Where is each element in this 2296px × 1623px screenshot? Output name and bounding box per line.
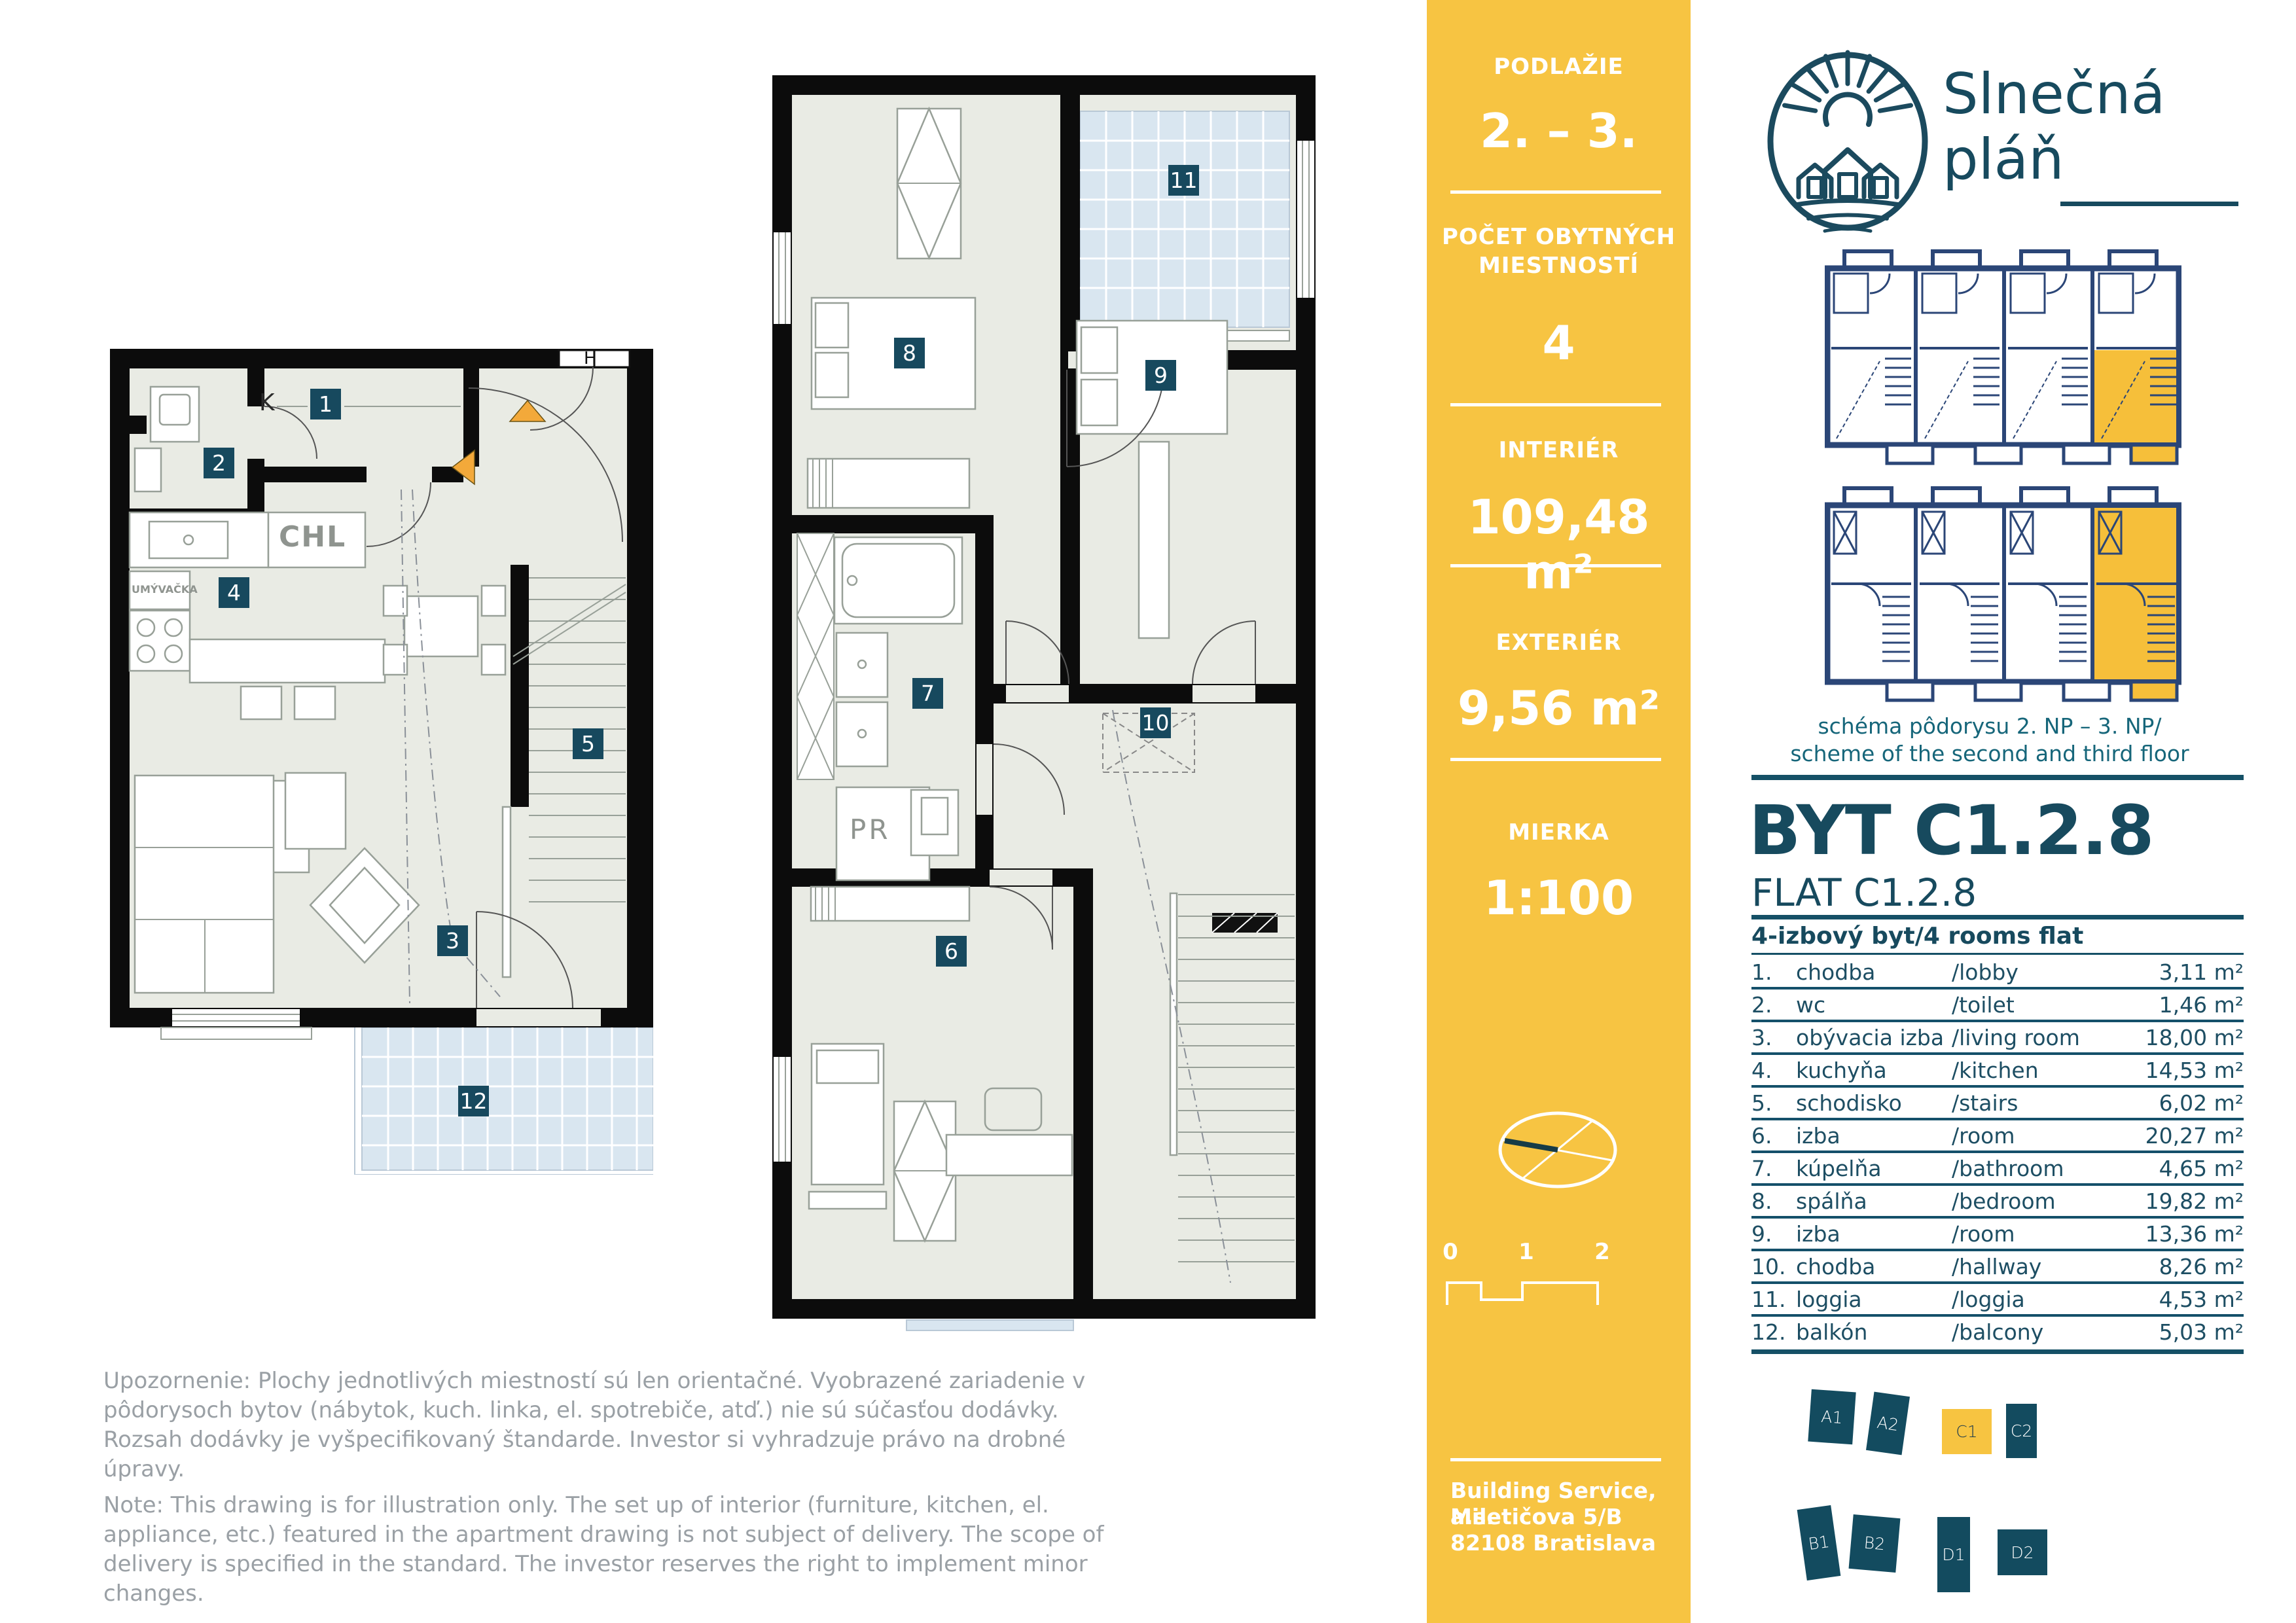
table-row: 12.balkón/balcony5,03 m²	[1751, 1317, 2244, 1347]
site-block-c2: C2	[2006, 1404, 2037, 1458]
row-num: 10.	[1751, 1254, 1796, 1279]
row-name-sk: chodba	[1796, 959, 1952, 985]
building-scheme-floor2	[1825, 249, 2181, 468]
room-badge-1: 1	[310, 389, 341, 419]
rooms-count-value: 4	[1427, 315, 1691, 370]
row-area: 19,82 m²	[2145, 1188, 2244, 1214]
floor-value: 2. – 3.	[1427, 103, 1691, 158]
row-name-en: /kitchen	[1952, 1058, 2145, 1083]
row-name-sk: kúpelňa	[1796, 1156, 1952, 1181]
row-name-sk: izba	[1796, 1123, 1952, 1149]
table-row: 4.kuchyňa/kitchen14,53 m²	[1751, 1055, 2244, 1088]
row-num: 11.	[1751, 1287, 1796, 1312]
row-area: 13,36 m²	[2145, 1221, 2244, 1247]
publisher-street: Miletičova 5/B	[1450, 1504, 1673, 1530]
row-area: 1,46 m²	[2159, 992, 2244, 1018]
row-num: 8.	[1751, 1188, 1796, 1214]
room-badge-6: 6	[936, 936, 967, 967]
site-block-d2: D2	[1998, 1529, 2047, 1575]
floorplan-third-floor: 8 9 11 7 10 6 PR	[772, 75, 1316, 1332]
table-bottom-rule	[1751, 1349, 2244, 1354]
floorplan-second-floor-drawing	[110, 349, 653, 1175]
row-name-en: /bedroom	[1952, 1188, 2145, 1214]
divider	[1450, 403, 1661, 406]
room-badge-2: 2	[204, 448, 234, 478]
divider	[1450, 758, 1661, 761]
row-area: 6,02 m²	[2159, 1090, 2244, 1116]
scalebar-0: 0	[1437, 1239, 1463, 1265]
row-name-en: /balcony	[1952, 1319, 2159, 1345]
room-badge-9: 9	[1145, 360, 1176, 391]
floor-label: PODLAŽIE	[1427, 54, 1691, 80]
label-fridge: CHL	[279, 520, 346, 554]
site-block-d1: D1	[1937, 1517, 1970, 1592]
building-scheme-floor3	[1825, 486, 2181, 705]
scheme-caption-en: scheme of the second and third floor	[1702, 741, 2278, 766]
row-name-en: /loggia	[1952, 1287, 2159, 1312]
label-entry-door: H	[584, 349, 597, 368]
row-name-sk: chodba	[1796, 1254, 1952, 1279]
floorplan-third-floor-drawing	[772, 75, 1316, 1332]
exterior-label: EXTERIÉR	[1427, 630, 1691, 656]
scheme-caption-sk: schéma pôdorysu 2. NP – 3. NP/	[1702, 713, 2278, 739]
row-name-en: /hallway	[1952, 1254, 2159, 1279]
brand-underline	[2060, 202, 2238, 206]
flat-title-en: FLAT C1.2.8	[1751, 870, 1977, 915]
row-area: 4,53 m²	[2159, 1287, 2244, 1312]
row-name-sk: kuchyňa	[1796, 1058, 1952, 1083]
site-block-a1: A1	[1808, 1389, 1856, 1445]
row-num: 3.	[1751, 1025, 1796, 1050]
row-name-sk: spálňa	[1796, 1188, 1952, 1214]
label-pantry: PR	[850, 813, 891, 846]
row-area: 4,65 m²	[2159, 1156, 2244, 1181]
row-num: 5.	[1751, 1090, 1796, 1116]
brand-name-line2: pláň	[1943, 128, 2064, 191]
north-compass-icon	[1496, 1109, 1620, 1194]
room-badge-8: 8	[894, 338, 925, 368]
disclaimer-sk: Upozornenie: Plochy jednotlivých miestno…	[103, 1366, 1111, 1484]
table-top-rule	[1751, 915, 2244, 919]
divider	[1450, 564, 1661, 567]
row-name-en: /living room	[1952, 1025, 2145, 1050]
room-table: 1.chodba/lobby3,11 m² 2.wc/toilet1,46 m²…	[1751, 957, 2244, 1347]
row-name-sk: wc	[1796, 992, 1952, 1018]
rooms-count-label-2: MIESTNOSTÍ	[1427, 253, 1691, 279]
room-table-title: 4-izbový byt/4 rooms flat	[1751, 923, 2083, 950]
label-dishwasher: UMÝVAČKA	[132, 583, 198, 596]
site-block-b1: B1	[1797, 1505, 1841, 1580]
room-badge-4: 4	[219, 577, 249, 608]
room-badge-5: 5	[573, 728, 603, 759]
table-row: 6.izba/room20,27 m²	[1751, 1120, 2244, 1153]
table-row: 10.chodba/hallway8,26 m²	[1751, 1251, 2244, 1284]
row-name-sk: balkón	[1796, 1319, 1952, 1345]
row-name-sk: schodisko	[1796, 1090, 1952, 1116]
exterior-value: 9,56 m²	[1427, 681, 1691, 736]
brochure-page: 1 2 4 3 5 12 K CHL UMÝVAČKA H	[0, 0, 2296, 1623]
divider	[1450, 190, 1661, 194]
scale-label: MIERKA	[1427, 819, 1691, 846]
table-row: 11.loggia/loggia4,53 m²	[1751, 1284, 2244, 1317]
scalebar-icon	[1442, 1275, 1609, 1308]
scalebar-2: 2	[1589, 1239, 1615, 1265]
divider	[1751, 775, 2244, 780]
room-badge-3: 3	[437, 925, 468, 956]
spec-sidebar: PODLAŽIE 2. – 3. POČET OBYTNÝCH MIESTNOS…	[1427, 0, 1691, 1623]
divider	[1450, 1458, 1661, 1461]
row-name-sk: izba	[1796, 1221, 1952, 1247]
row-area: 18,00 m²	[2145, 1025, 2244, 1050]
brand-name-line1: Slnečná	[1943, 63, 2165, 126]
room-badge-7: 7	[912, 678, 943, 709]
row-name-sk: obývacia izba	[1796, 1025, 1952, 1050]
row-area: 20,27 m²	[2145, 1123, 2244, 1149]
floorplan-second-floor: 1 2 4 3 5 12 K CHL UMÝVAČKA H	[110, 349, 653, 1175]
table-title-rule	[1751, 953, 2244, 955]
loggia-11	[1080, 111, 1289, 341]
disclaimer-en: Note: This drawing is for illustration o…	[103, 1491, 1124, 1609]
room-badge-10: 10	[1140, 707, 1171, 738]
interior-value: 109,48 m²	[1427, 490, 1691, 599]
table-row: 8.spálňa/bedroom19,82 m²	[1751, 1186, 2244, 1219]
row-num: 1.	[1751, 959, 1796, 985]
room-badge-12: 12	[458, 1086, 489, 1116]
table-row: 3.obývacia izba/living room18,00 m²	[1751, 1022, 2244, 1055]
row-num: 9.	[1751, 1221, 1796, 1247]
row-area: 14,53 m²	[2145, 1058, 2244, 1083]
row-area: 8,26 m²	[2159, 1254, 2244, 1279]
row-area: 5,03 m²	[2159, 1319, 2244, 1345]
table-row: 1.chodba/lobby3,11 m²	[1751, 957, 2244, 990]
label-kitchen-shaft: K	[259, 389, 275, 416]
sun-over-houses-icon	[1759, 43, 1936, 240]
row-name-en: /lobby	[1952, 959, 2159, 985]
flat-title-sk: BYT C1.2.8	[1749, 791, 2153, 870]
site-block-a2: A2	[1866, 1392, 1910, 1455]
scale-value: 1:100	[1427, 870, 1691, 925]
row-num: 6.	[1751, 1123, 1796, 1149]
row-name-en: /room	[1952, 1123, 2145, 1149]
balcony-12	[355, 1023, 653, 1175]
row-name-en: /stairs	[1952, 1090, 2159, 1116]
scalebar-1: 1	[1513, 1239, 1539, 1265]
row-name-en: /toilet	[1952, 992, 2159, 1018]
table-row: 7.kúpelňa/bathroom4,65 m²	[1751, 1153, 2244, 1186]
site-block-c1: C1	[1942, 1409, 1992, 1454]
publisher-city: 82108 Bratislava	[1450, 1530, 1673, 1556]
row-area: 3,11 m²	[2159, 959, 2244, 985]
row-num: 12.	[1751, 1319, 1796, 1345]
table-row: 9.izba/room13,36 m²	[1751, 1219, 2244, 1251]
row-num: 7.	[1751, 1156, 1796, 1181]
table-row: 5.schodisko/stairs6,02 m²	[1751, 1088, 2244, 1120]
table-row: 2.wc/toilet1,46 m²	[1751, 990, 2244, 1022]
room-badge-11: 11	[1168, 165, 1199, 196]
row-name-sk: loggia	[1796, 1287, 1952, 1312]
row-num: 4.	[1751, 1058, 1796, 1083]
rooms-count-label-1: POČET OBYTNÝCH	[1427, 224, 1691, 250]
interior-label: INTERIÉR	[1427, 437, 1691, 463]
row-name-en: /bathroom	[1952, 1156, 2159, 1181]
site-block-b2: B2	[1849, 1514, 1901, 1573]
row-num: 2.	[1751, 992, 1796, 1018]
row-name-en: /room	[1952, 1221, 2145, 1247]
